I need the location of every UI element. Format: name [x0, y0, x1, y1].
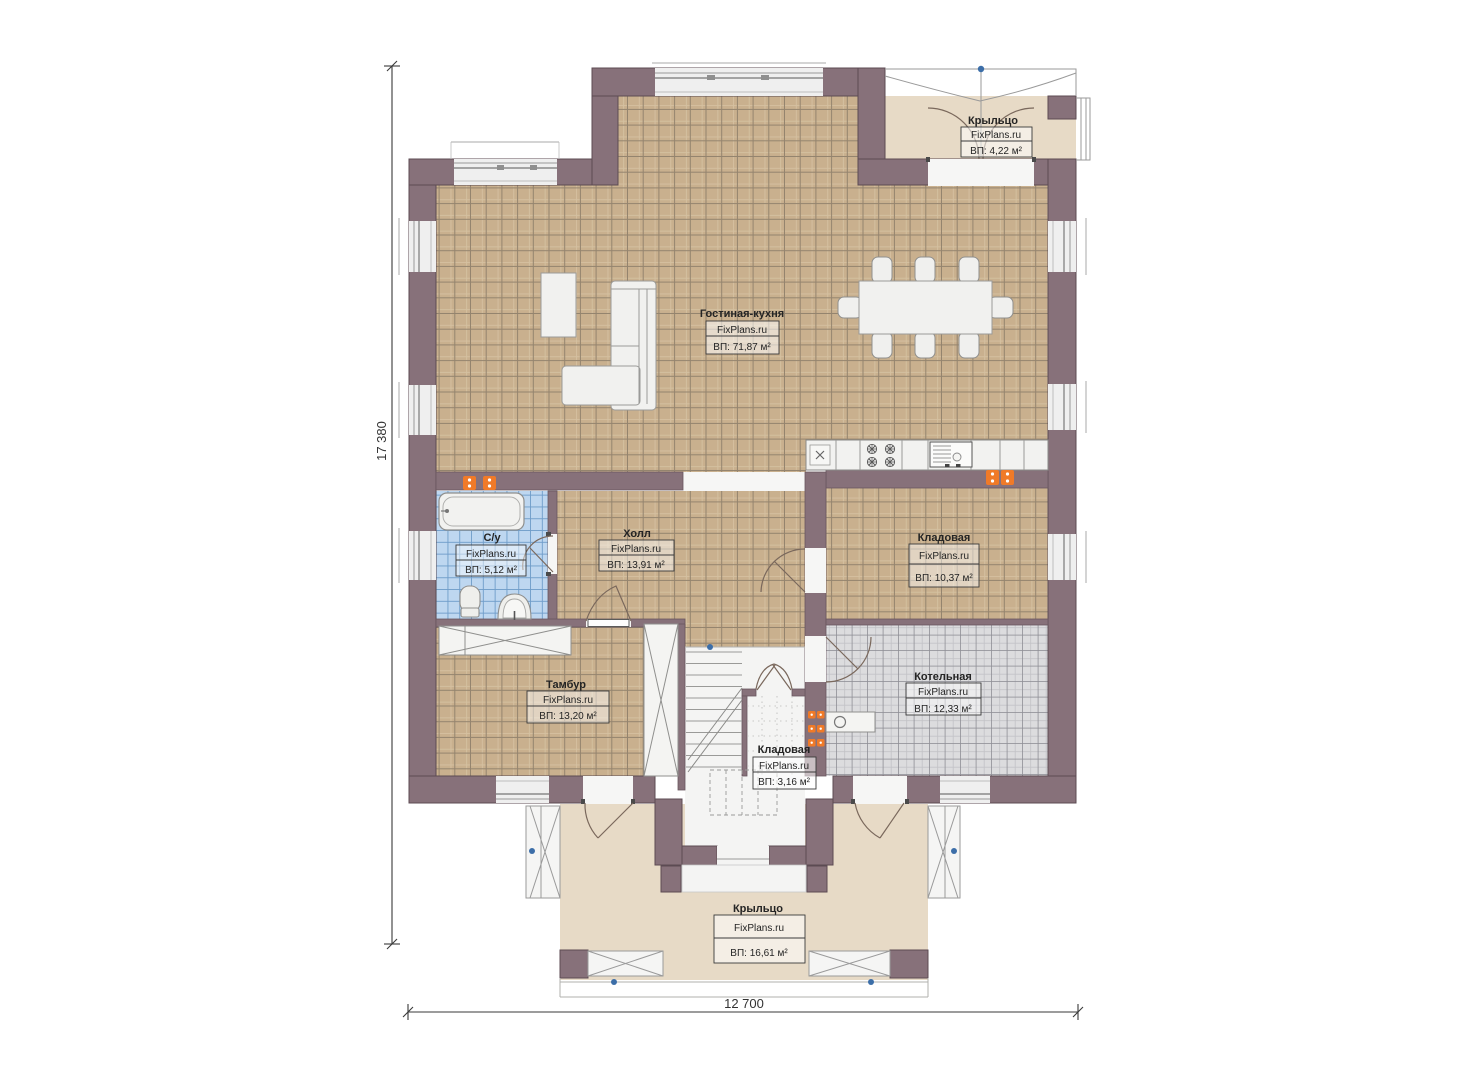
svg-text:Кладовая: Кладовая — [918, 532, 971, 544]
svg-text:FixPlans.ru: FixPlans.ru — [971, 130, 1021, 141]
svg-text:ВП: 13,91 м²: ВП: 13,91 м² — [607, 560, 665, 571]
svg-text:FixPlans.ru: FixPlans.ru — [717, 325, 767, 336]
svg-text:ВП: 71,87 м²: ВП: 71,87 м² — [713, 342, 771, 353]
svg-text:Крыльцо: Крыльцо — [733, 903, 783, 915]
svg-text:Гостиная-кухня: Гостиная-кухня — [700, 308, 784, 320]
svg-text:ВП: 3,16 м²: ВП: 3,16 м² — [758, 777, 811, 788]
svg-text:FixPlans.ru: FixPlans.ru — [466, 549, 516, 560]
svg-text:Тамбур: Тамбур — [546, 679, 586, 691]
svg-text:ВП: 12,33 м²: ВП: 12,33 м² — [914, 704, 972, 715]
svg-text:ВП: 10,37 м²: ВП: 10,37 м² — [915, 573, 973, 584]
svg-text:ВП: 4,22 м²: ВП: 4,22 м² — [970, 146, 1023, 157]
svg-text:Холл: Холл — [623, 528, 651, 540]
svg-text:FixPlans.ru: FixPlans.ru — [543, 695, 593, 706]
svg-text:ВП: 13,20 м²: ВП: 13,20 м² — [539, 711, 597, 722]
svg-text:ВП: 16,61 м²: ВП: 16,61 м² — [730, 948, 788, 959]
svg-text:Котельная: Котельная — [914, 671, 972, 683]
svg-text:С/у: С/у — [483, 532, 501, 544]
svg-text:FixPlans.ru: FixPlans.ru — [734, 923, 784, 934]
svg-text:FixPlans.ru: FixPlans.ru — [918, 687, 968, 698]
svg-text:Кладовая: Кладовая — [758, 744, 811, 756]
svg-text:Крыльцо: Крыльцо — [968, 115, 1018, 127]
svg-text:FixPlans.ru: FixPlans.ru — [919, 551, 969, 562]
svg-text:12 700: 12 700 — [724, 996, 764, 1011]
svg-text:ВП: 5,12 м²: ВП: 5,12 м² — [465, 565, 518, 576]
svg-text:17 380: 17 380 — [374, 421, 389, 461]
svg-text:FixPlans.ru: FixPlans.ru — [611, 544, 661, 555]
svg-text:FixPlans.ru: FixPlans.ru — [759, 761, 809, 772]
